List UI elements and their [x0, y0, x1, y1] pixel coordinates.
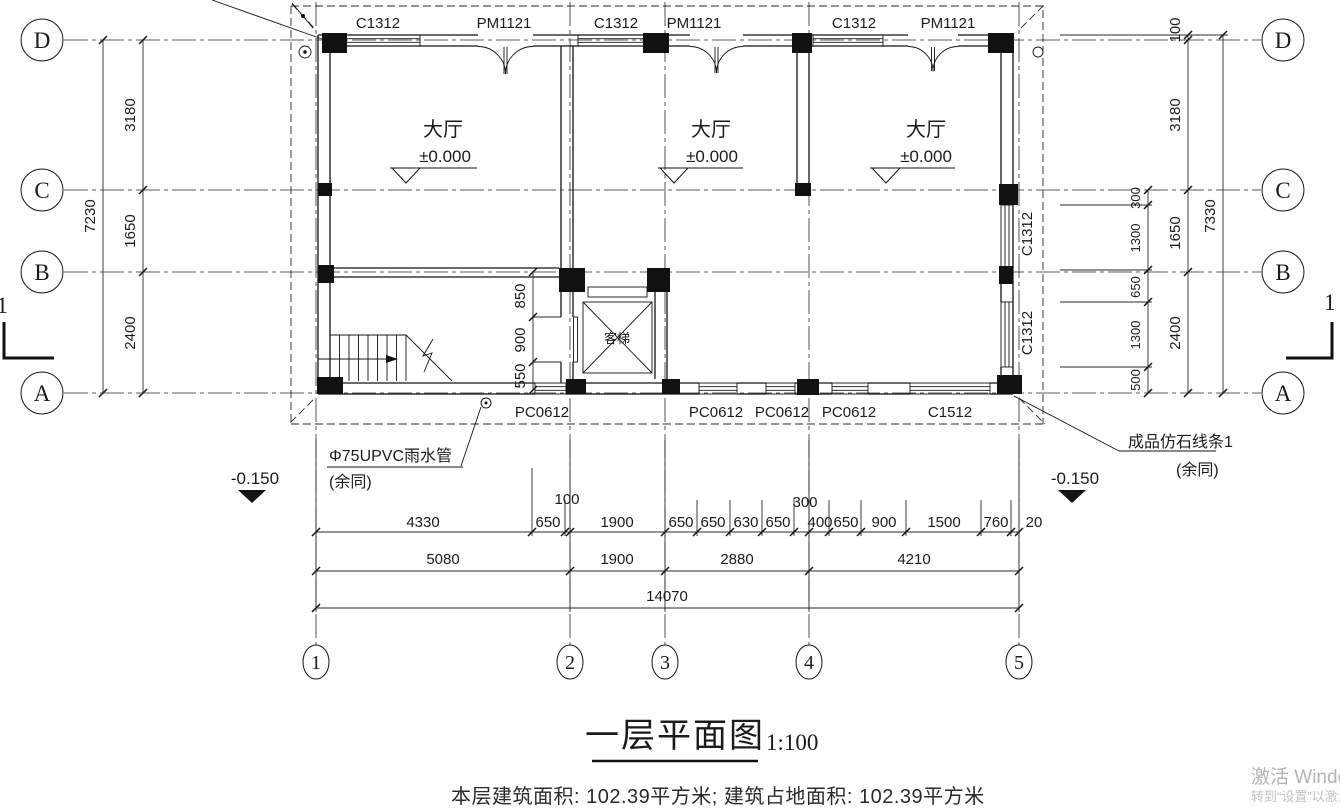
- window-label: PC0612: [822, 404, 876, 421]
- dim-label: 2400: [122, 316, 139, 349]
- dim-label: 400: [807, 514, 832, 531]
- dim-label: 900: [512, 327, 529, 352]
- dim-label: 2400: [1167, 316, 1184, 349]
- rain-pipe-label: Φ75UPVC雨水管: [329, 447, 452, 465]
- grid-row-label: B: [34, 260, 49, 285]
- window-label: PC0612: [755, 404, 809, 421]
- dim-label: 3180: [1167, 98, 1184, 131]
- dim-label: 650: [668, 514, 693, 531]
- grid-col-label: 1: [311, 652, 321, 674]
- columns: [317, 33, 1022, 395]
- door-label: PM1121: [477, 15, 532, 32]
- dim-label: 630: [733, 514, 758, 531]
- window-label: PC0612: [689, 404, 743, 421]
- dim-label: 1900: [600, 551, 633, 568]
- hall-labels: 大厅 ±0.000 大厅 ±0.000 大厅 ±0.000: [419, 118, 952, 166]
- door-label: PM1121: [921, 15, 976, 32]
- rain-pipe-note: (余同): [329, 472, 372, 491]
- grid-row-label: C: [34, 178, 49, 203]
- grid-row-label: A: [1275, 381, 1292, 406]
- room-label: 大厅: [906, 118, 946, 141]
- grid-row-label: B: [1275, 260, 1290, 285]
- title-block: 一层平面图 1:100: [585, 717, 818, 761]
- grid-bubbles: [21, 19, 1304, 679]
- dim-label: 1300: [1128, 321, 1143, 350]
- area-summary: 本层建筑面积: 102.39平方米; 建筑占地面积: 102.39平方米: [451, 780, 985, 809]
- grid-row-label: A: [34, 381, 51, 406]
- activate-windows-watermark-sub: 转到“设置”以激活 Windows。: [1251, 786, 1340, 805]
- dim-label: 100: [554, 491, 579, 508]
- dim-label: 20: [1026, 514, 1043, 531]
- section-number: 1: [1324, 290, 1336, 315]
- dim-label: 7230: [82, 199, 99, 232]
- grid-col-label: 3: [660, 652, 670, 674]
- window-label: C1312: [1019, 311, 1036, 355]
- dim-label: 4330: [406, 514, 439, 531]
- dim-label: 1500: [927, 514, 960, 531]
- grid-col-label: 2: [565, 652, 575, 674]
- doors: [478, 47, 958, 75]
- dim-label: 1900: [600, 514, 633, 531]
- level-value: -0.150: [1051, 469, 1099, 488]
- room-label: 大厅: [423, 118, 463, 141]
- walls: [318, 35, 1013, 394]
- elevator-label: 客梯: [604, 331, 630, 346]
- dim-label: 650: [535, 514, 560, 531]
- grid-col-label: 4: [804, 652, 814, 674]
- dim-label: 1650: [1167, 216, 1184, 249]
- dim-label: 100: [1167, 17, 1184, 42]
- dim-label: 650: [765, 514, 790, 531]
- grid-row-label: D: [34, 28, 51, 53]
- room-label: 大厅: [691, 118, 731, 141]
- dim-label: 7330: [1202, 199, 1219, 232]
- stair: [318, 335, 452, 381]
- door-label: PM1121: [667, 15, 722, 32]
- elevator: [574, 287, 653, 373]
- dim-label: 2880: [720, 551, 753, 568]
- window-label: C1312: [594, 15, 638, 32]
- dim-label: 500: [1128, 369, 1143, 391]
- floor-plan-page: { "drawing": { "title": "一层平面图", "scale"…: [0, 0, 1340, 797]
- floor-plan-drawing: 客梯 大厅 ±0.000 大厅 ±0.000 大厅 ±0.000 C1312 P…: [0, 0, 1340, 797]
- dim-label: 650: [1128, 276, 1143, 298]
- level-value: ±0.000: [419, 147, 471, 166]
- level-value: -0.150: [231, 469, 279, 488]
- dim-label: 760: [983, 514, 1008, 531]
- dimension-lines: [103, 35, 1228, 612]
- dim-label: 1650: [122, 214, 139, 247]
- grid-lines: [64, 2, 1261, 645]
- grid-row-label: C: [1275, 178, 1290, 203]
- dim-label: 14070: [646, 588, 688, 605]
- section-number: 1: [0, 293, 8, 318]
- window-label: C1312: [356, 15, 400, 32]
- dim-label: 850: [512, 283, 529, 308]
- window-label: C1312: [832, 15, 876, 32]
- dim-label: 1300: [1128, 224, 1143, 253]
- dim-label: 650: [700, 514, 725, 531]
- level-value: ±0.000: [900, 147, 952, 166]
- level-symbols: [390, 168, 955, 183]
- dimension-ticks: [99, 31, 1227, 612]
- dim-label: 900: [871, 514, 896, 531]
- window-label: C1512: [928, 404, 972, 421]
- dimension-labels: 7230 3180 1650 2400 100 3180 1650 2400 7…: [82, 17, 1219, 605]
- dim-label: 4210: [897, 551, 930, 568]
- dim-label: 5080: [426, 551, 459, 568]
- activate-windows-watermark: 激活 Windows: [1251, 762, 1340, 789]
- dim-label: 3180: [122, 98, 139, 131]
- drawing-title: 一层平面图: [585, 717, 765, 755]
- annotation-leaders: [212, 0, 1216, 467]
- grid-row-label: D: [1275, 28, 1292, 53]
- opening-labels: C1312 PM1121 C1312 PM1121 C1312 PM1121 P…: [356, 15, 1036, 421]
- window-label: PC0612: [515, 404, 569, 421]
- dim-label: 300: [792, 494, 817, 511]
- grid-bubble-labels: D C B A D C B A 1 2 3 4 5: [34, 28, 1292, 674]
- grid-col-label: 5: [1014, 652, 1024, 674]
- annotation-texts: Φ75UPVC雨水管 (余同) 成品仿石线条1 (余同) -0.150 -0.1…: [231, 433, 1233, 491]
- dim-label: 650: [833, 514, 858, 531]
- annotation-dots: [238, 14, 1086, 503]
- dim-label: 300: [1128, 187, 1143, 209]
- drawing-scale: 1:100: [766, 730, 818, 755]
- stone-line-note: (余同): [1176, 460, 1219, 479]
- stone-line-label: 成品仿石线条1: [1128, 433, 1233, 451]
- window-label: C1312: [1019, 212, 1036, 256]
- level-value: ±0.000: [686, 147, 738, 166]
- windows: [342, 35, 1013, 394]
- dim-label: 550: [512, 363, 529, 388]
